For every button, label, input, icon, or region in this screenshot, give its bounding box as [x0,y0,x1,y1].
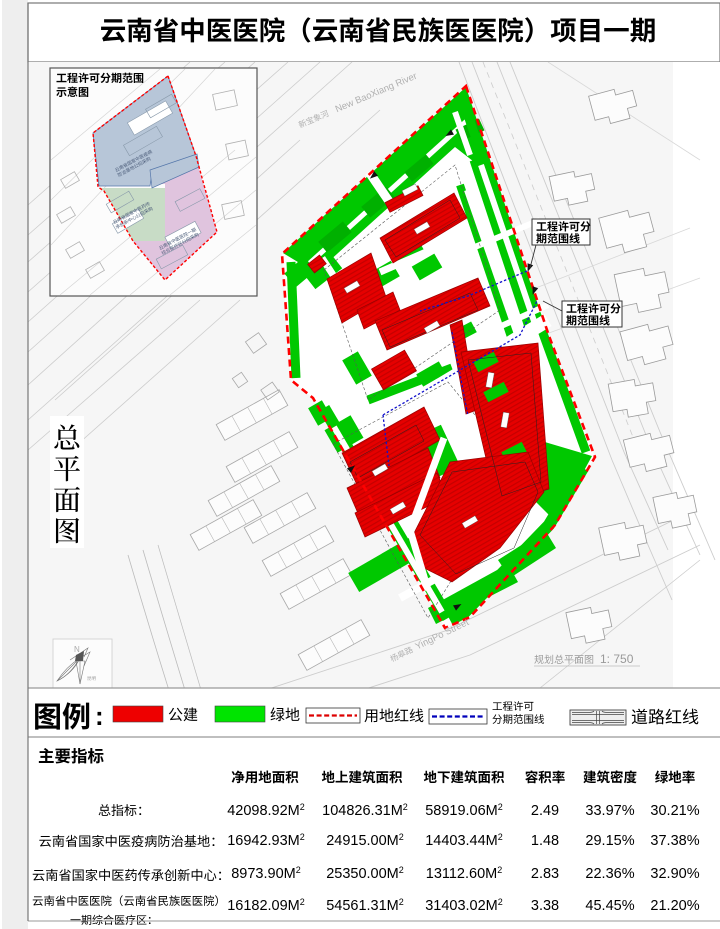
svg-text:58919.06M2: 58919.06M2 [425,802,503,819]
svg-text:31403.02M2: 31403.02M2 [425,897,503,914]
svg-text:24915.00M2: 24915.00M2 [326,832,404,849]
svg-text:32.90%: 32.90% [650,866,699,882]
svg-text:30.21%: 30.21% [650,803,699,819]
svg-text:104826.31M2: 104826.31M2 [322,802,408,819]
svg-text:1: 750: 1: 750 [600,652,634,666]
svg-text:3.38: 3.38 [531,898,559,914]
svg-text:25350.00M2: 25350.00M2 [326,865,404,882]
svg-text:22.36%: 22.36% [585,866,634,882]
svg-text:N: N [74,645,80,654]
svg-text:29.15%: 29.15% [585,833,634,849]
svg-text:37.38%: 37.38% [650,833,699,849]
svg-text:8973.90M2: 8973.90M2 [231,865,301,882]
svg-text:21.20%: 21.20% [650,898,699,914]
svg-text:2.83: 2.83 [531,866,559,882]
svg-text:33.97%: 33.97% [585,803,634,819]
svg-text:42098.92M2: 42098.92M2 [227,802,305,819]
svg-text::: : [95,701,104,731]
svg-text:16942.93M2: 16942.93M2 [227,832,305,849]
svg-text:45.45%: 45.45% [585,898,634,914]
svg-text:16182.09M2: 16182.09M2 [227,897,305,914]
svg-text:1.48: 1.48 [531,833,559,849]
svg-text:13112.60M2: 13112.60M2 [426,865,503,882]
svg-text:14403.44M2: 14403.44M2 [425,832,503,849]
svg-text:2.49: 2.49 [531,803,559,819]
svg-text:54561.31M2: 54561.31M2 [326,897,404,914]
